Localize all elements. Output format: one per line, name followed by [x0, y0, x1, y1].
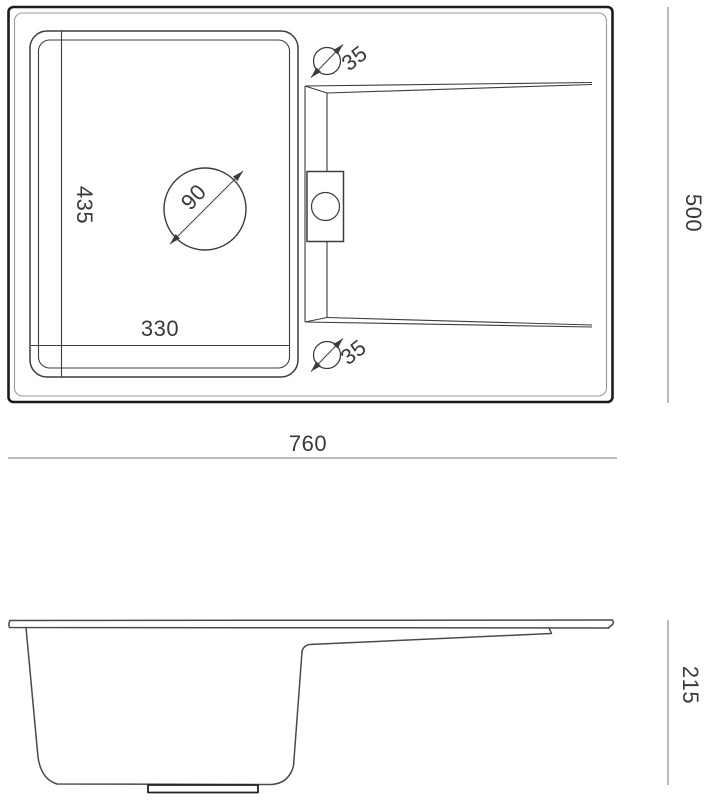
faucet-mount	[307, 172, 344, 242]
tap-hole-bottom-diameter-arrow	[311, 339, 343, 372]
drainer-board	[305, 83, 592, 328]
tap-hole-bottom: 35	[311, 334, 371, 371]
overall-height-label: 215	[678, 666, 703, 704]
drain-diameter-label: 90	[176, 179, 212, 215]
tap-hole-bottom-label: 35	[336, 334, 371, 369]
drain-hole: 90	[164, 168, 246, 250]
side-view: 215	[9, 620, 703, 793]
dimension-overall-height: 215	[668, 620, 703, 785]
top-view: 90 35 35 43	[8, 7, 704, 458]
side-profile	[9, 620, 614, 793]
sink-technical-drawing: 90 35 35 43	[0, 0, 704, 800]
drawing-svg: 90 35 35 43	[0, 0, 704, 800]
dimension-overall-width: 760	[8, 431, 617, 458]
tap-hole-top-diameter-arrow	[311, 45, 343, 78]
overall-depth-label: 500	[681, 194, 704, 232]
basin-depth-label: 435	[72, 186, 97, 224]
basin-width-label: 330	[141, 316, 179, 341]
tap-hole-top: 35	[311, 40, 372, 77]
dimension-overall-depth: 500	[668, 7, 704, 403]
drain-diameter-arrow	[170, 171, 243, 244]
overall-width-label: 760	[289, 431, 327, 456]
